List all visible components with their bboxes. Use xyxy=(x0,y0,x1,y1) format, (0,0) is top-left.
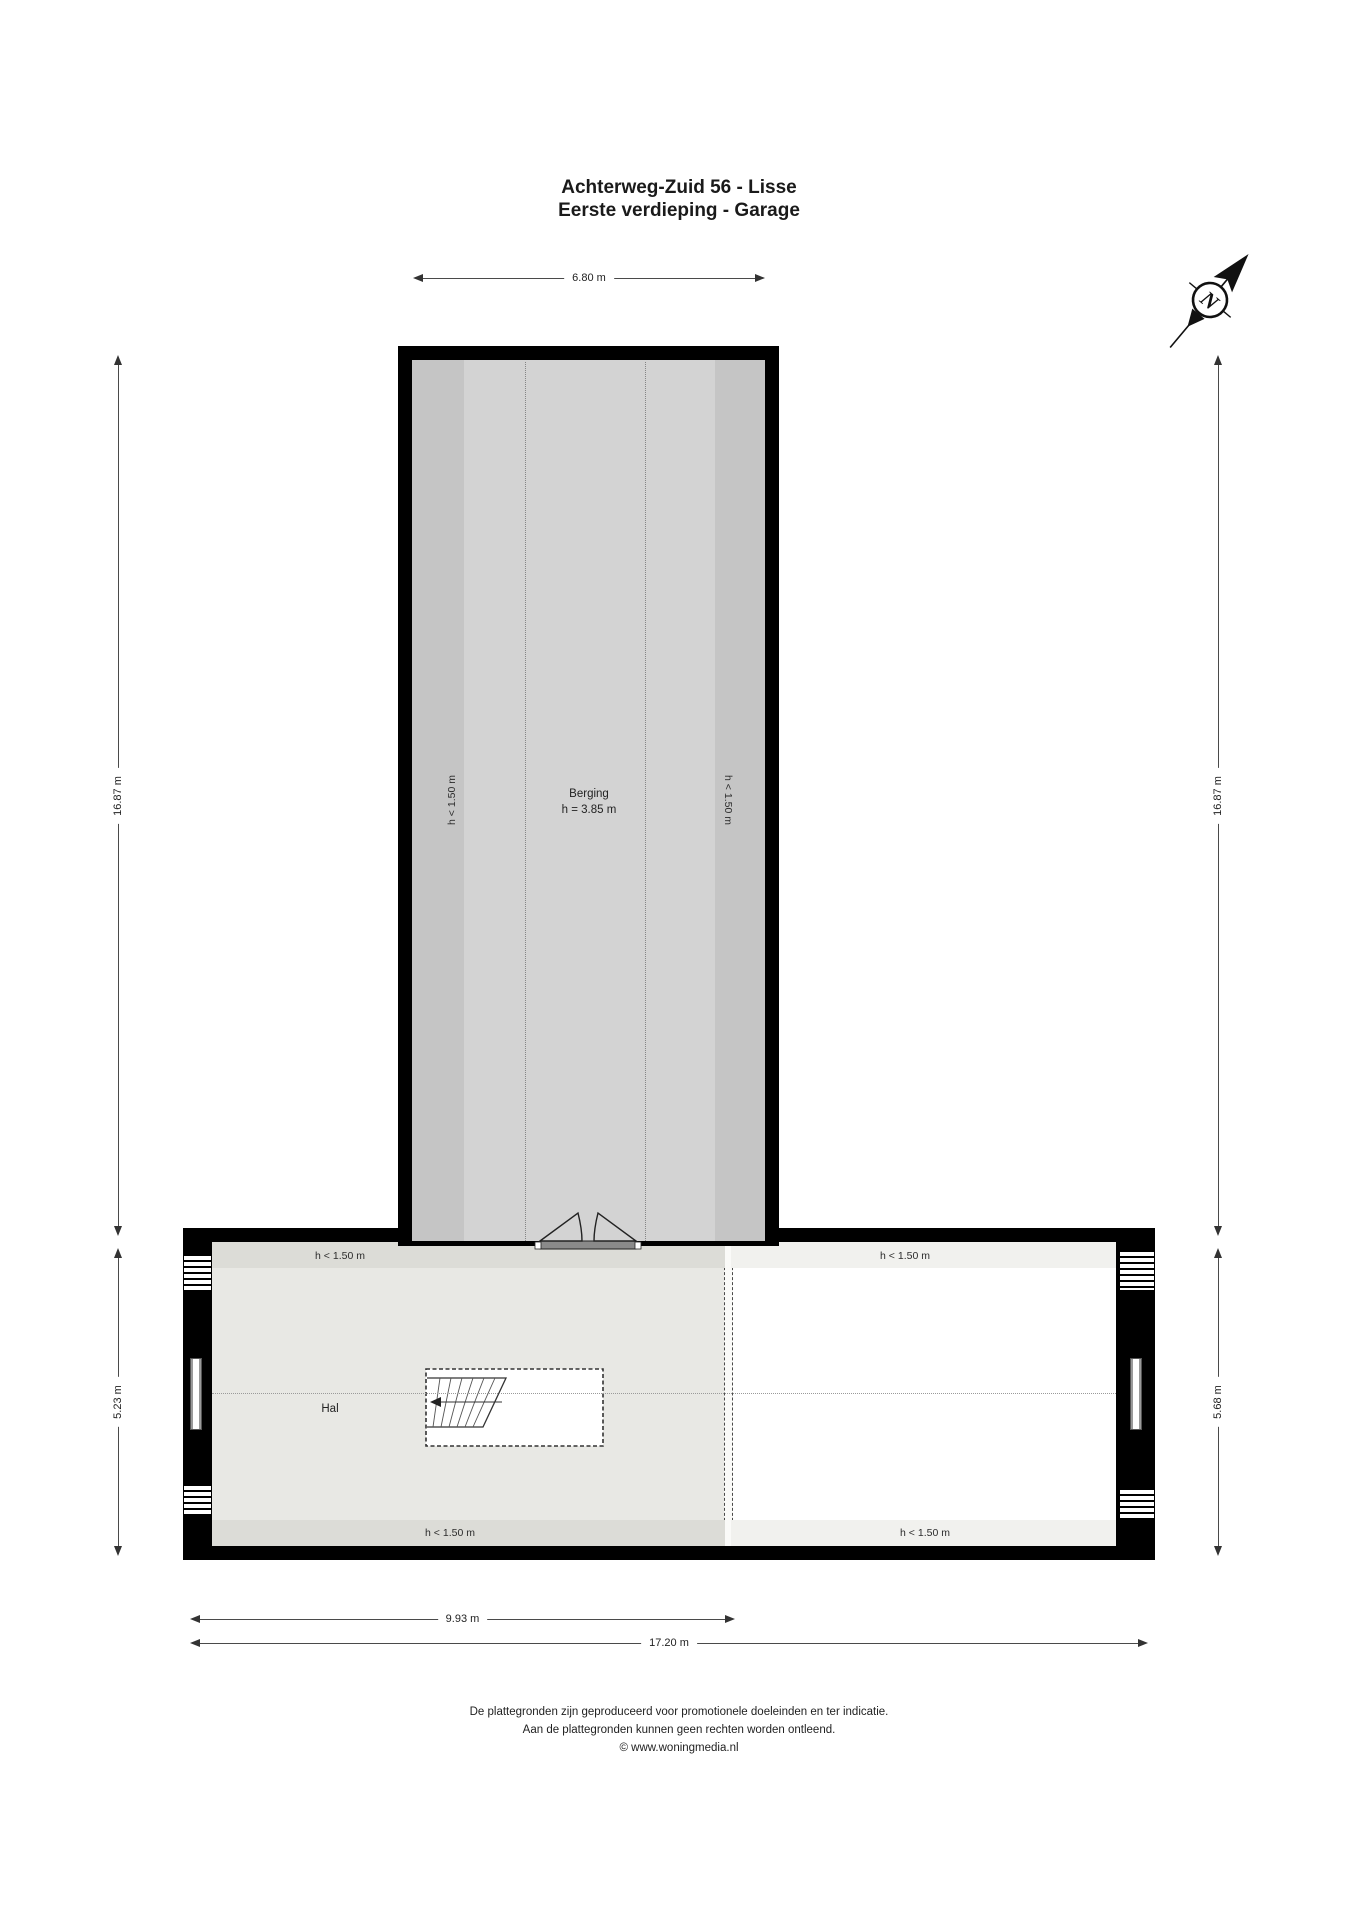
footer-line-2: Aan de plattegronden kunnen geen rechten… xyxy=(0,1721,1358,1739)
arrow-up-icon xyxy=(114,1248,122,1258)
dimension-right-lower: 5.68 m xyxy=(1211,1248,1224,1556)
open-zone-divider xyxy=(724,1242,733,1546)
dimension-bottom-total: 17.20 m xyxy=(190,1636,1148,1649)
dimension-bottom-hal: 9.93 m xyxy=(190,1612,735,1625)
floorplan-page: Achterweg-Zuid 56 - Lisse Eerste verdiep… xyxy=(0,0,1358,1920)
stairwell xyxy=(424,1364,606,1450)
arrow-left-icon xyxy=(190,1639,200,1647)
hal-room-label: Hal xyxy=(321,1401,338,1417)
door-threshold xyxy=(540,1241,636,1249)
page-title: Achterweg-Zuid 56 - Lisse Eerste verdiep… xyxy=(0,176,1358,222)
attic-right-floor xyxy=(731,1242,1116,1546)
arrow-up-icon xyxy=(114,355,122,365)
arrow-left-icon xyxy=(190,1615,200,1623)
arrow-right-icon xyxy=(1138,1639,1148,1647)
hal-low-zone-bottom-label: h < 1.50 m xyxy=(425,1527,475,1539)
title-address: Achterweg-Zuid 56 - Lisse xyxy=(0,176,1358,199)
berging-height-contour-left xyxy=(525,362,526,1241)
title-floor: Eerste verdieping - Garage xyxy=(0,199,1358,222)
ridge-dotted-line xyxy=(212,1393,1116,1394)
berging-low-zone-left-label: h < 1.50 m xyxy=(446,775,458,825)
dimension-top-width-label: 6.80 m xyxy=(564,271,614,285)
arrow-up-icon xyxy=(1214,1248,1222,1258)
footer-copyright: © www.woningmedia.nl xyxy=(0,1739,1358,1757)
arrow-left-icon xyxy=(413,274,423,282)
footer-disclaimer: De plattegronden zijn geproduceerd voor … xyxy=(0,1703,1358,1757)
arrow-down-icon xyxy=(1214,1546,1222,1556)
compass-north-icon: N xyxy=(1150,238,1270,362)
stair-void-outline xyxy=(426,1369,603,1446)
dimension-left-upper-label: 16.87 m xyxy=(111,768,125,824)
double-door xyxy=(530,1205,646,1255)
window-left-bottom xyxy=(184,1484,211,1516)
dimension-left-lower-label: 5.23 m xyxy=(111,1377,125,1427)
hal-low-zone-top-label: h < 1.50 m xyxy=(315,1250,365,1262)
door-leaf-left xyxy=(540,1213,582,1241)
dimension-right-lower-label: 5.68 m xyxy=(1211,1377,1225,1427)
arrow-down-icon xyxy=(114,1546,122,1556)
dimension-bottom-hal-label: 9.93 m xyxy=(438,1612,488,1626)
window-left-middle xyxy=(190,1358,202,1430)
berging-room-name: Berging xyxy=(562,786,617,802)
window-left-top xyxy=(184,1254,211,1292)
berging-room-label: Berging h = 3.85 m xyxy=(562,786,617,818)
window-right-top xyxy=(1120,1250,1154,1290)
arrow-right-icon xyxy=(755,274,765,282)
window-right-middle xyxy=(1130,1358,1142,1430)
berging-low-zone-right-label: h < 1.50 m xyxy=(722,775,734,825)
attic-low-zone-top-label: h < 1.50 m xyxy=(880,1250,930,1262)
berging-height-contour-right xyxy=(645,362,646,1241)
footer-line-1: De plattegronden zijn geproduceerd voor … xyxy=(0,1703,1358,1721)
dimension-bottom-total-label: 17.20 m xyxy=(641,1636,697,1650)
arrow-right-icon xyxy=(725,1615,735,1623)
dimension-left-lower: 5.23 m xyxy=(111,1248,124,1556)
dimension-left-upper: 16.87 m xyxy=(111,355,124,1236)
dimension-right-upper: 16.87 m xyxy=(1211,355,1224,1236)
dimension-right-upper-label: 16.87 m xyxy=(1211,768,1225,824)
door-leaf-right xyxy=(594,1213,636,1241)
attic-low-zone-bottom-label: h < 1.50 m xyxy=(900,1527,950,1539)
dimension-top-width: 6.80 m xyxy=(413,271,765,284)
arrow-down-icon xyxy=(114,1226,122,1236)
window-right-bottom xyxy=(1120,1488,1154,1518)
arrow-down-icon xyxy=(1214,1226,1222,1236)
berging-ceiling-height: h = 3.85 m xyxy=(562,802,617,818)
